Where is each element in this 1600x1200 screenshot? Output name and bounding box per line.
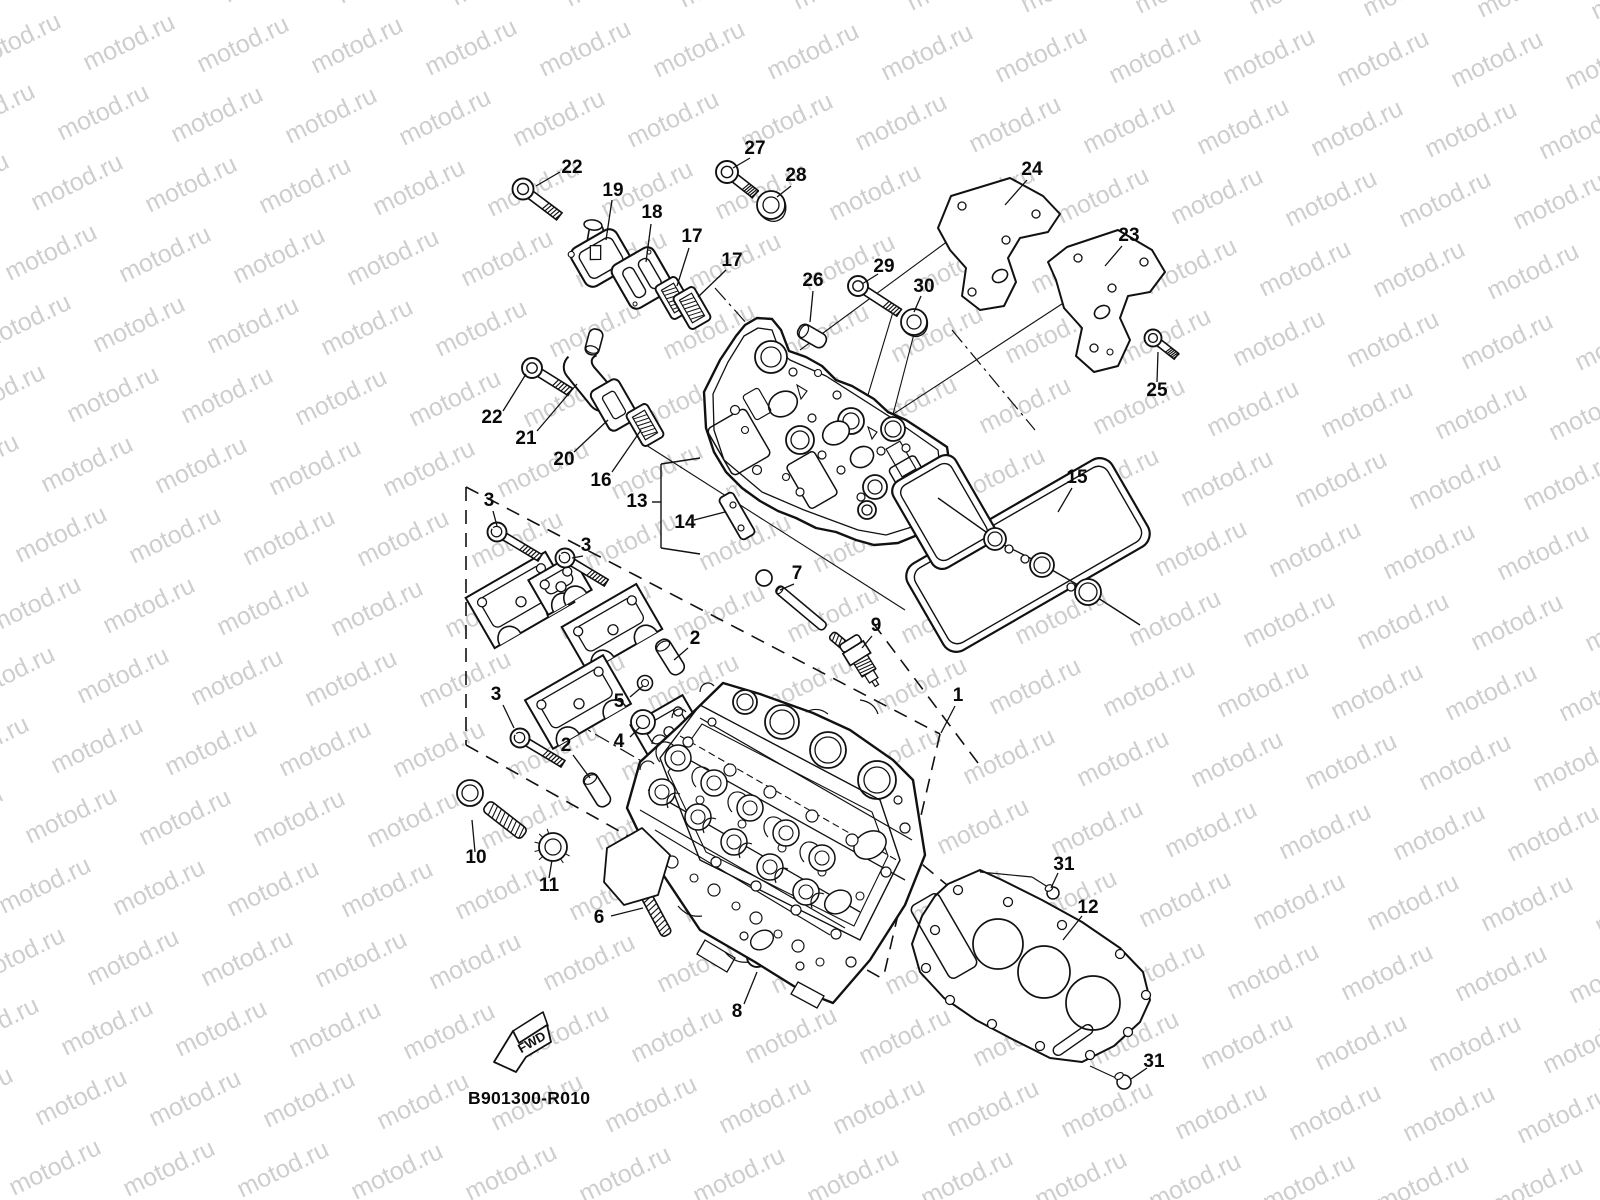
- svg-text:25: 25: [1146, 380, 1168, 401]
- svg-text:17: 17: [721, 250, 742, 271]
- svg-text:7: 7: [792, 563, 803, 584]
- svg-text:29: 29: [873, 256, 894, 277]
- svg-text:22: 22: [481, 407, 502, 428]
- svg-text:2: 2: [561, 735, 572, 756]
- svg-text:2: 2: [690, 628, 701, 649]
- svg-text:14: 14: [674, 512, 696, 533]
- svg-text:27: 27: [744, 138, 765, 159]
- svg-text:11: 11: [539, 875, 560, 896]
- svg-text:B901300-R010: B901300-R010: [468, 1088, 590, 1108]
- svg-text:21: 21: [515, 428, 537, 449]
- svg-text:30: 30: [913, 276, 934, 297]
- svg-text:5: 5: [614, 691, 625, 712]
- svg-text:10: 10: [465, 847, 486, 868]
- svg-text:23: 23: [1118, 225, 1139, 246]
- svg-text:3: 3: [581, 535, 592, 556]
- svg-text:15: 15: [1066, 467, 1088, 488]
- svg-text:26: 26: [802, 270, 823, 291]
- svg-text:31: 31: [1053, 854, 1075, 875]
- svg-text:3: 3: [484, 490, 495, 511]
- svg-text:13: 13: [626, 491, 647, 512]
- svg-text:4: 4: [614, 731, 625, 752]
- svg-text:12: 12: [1077, 897, 1098, 918]
- svg-text:22: 22: [561, 157, 582, 178]
- svg-text:17: 17: [681, 226, 702, 247]
- svg-text:20: 20: [553, 449, 574, 470]
- svg-text:19: 19: [602, 180, 623, 201]
- svg-text:16: 16: [590, 470, 611, 491]
- svg-text:24: 24: [1021, 159, 1043, 180]
- svg-text:31: 31: [1143, 1051, 1165, 1072]
- svg-text:8: 8: [732, 1001, 743, 1022]
- svg-text:18: 18: [641, 202, 662, 223]
- svg-text:9: 9: [871, 615, 882, 636]
- svg-text:6: 6: [594, 907, 605, 928]
- svg-text:1: 1: [953, 685, 964, 706]
- svg-text:28: 28: [785, 165, 806, 186]
- svg-text:3: 3: [491, 684, 502, 705]
